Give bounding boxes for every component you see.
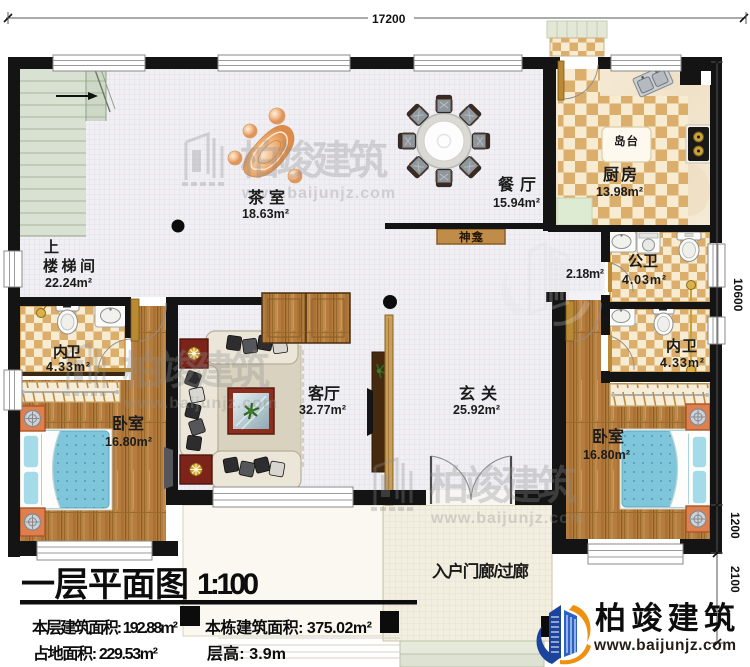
svg-text:入户门廊/过廊: 入户门廊/过廊 — [432, 561, 529, 581]
svg-text:卧室: 卧室 — [592, 427, 624, 446]
svg-text:公卫: 公卫 — [628, 253, 658, 270]
svg-text:一层平面图: 一层平面图 — [21, 566, 189, 604]
svg-text:1200: 1200 — [728, 512, 742, 539]
svg-text:25.92m²: 25.92m² — [453, 403, 500, 417]
svg-text:4.03m²: 4.03m² — [622, 273, 666, 287]
svg-text:楼梯间: 楼梯间 — [43, 257, 95, 275]
svg-text:岛台: 岛台 — [614, 134, 638, 148]
svg-text:卧室: 卧室 — [112, 414, 144, 433]
svg-text:内卫: 内卫 — [53, 343, 81, 361]
svg-text:16.80m²: 16.80m² — [583, 448, 630, 462]
svg-text:神龛: 神龛 — [459, 230, 484, 244]
svg-text:www.baijunjz.com: www.baijunjz.com — [241, 185, 396, 202]
svg-text:占地面积: 229.53m²: 占地面积: 229.53m² — [33, 644, 158, 663]
svg-text:2100: 2100 — [728, 566, 742, 593]
svg-text:17200: 17200 — [372, 12, 406, 26]
svg-text:4.33m²: 4.33m² — [660, 356, 704, 370]
svg-text:22.24m²: 22.24m² — [45, 276, 92, 290]
svg-text:上: 上 — [44, 239, 59, 256]
svg-text:客厅: 客厅 — [308, 384, 340, 403]
svg-text:10600: 10600 — [731, 278, 745, 312]
svg-text:内卫: 内卫 — [666, 337, 697, 355]
svg-text:本层建筑面积: 192.88m²: 本层建筑面积: 192.88m² — [32, 618, 178, 637]
svg-text:4.33m²: 4.33m² — [46, 360, 90, 374]
svg-text:www.baijunjz.com: www.baijunjz.com — [593, 637, 736, 654]
svg-text:18.63m²: 18.63m² — [242, 207, 289, 221]
svg-text:13.98m²: 13.98m² — [596, 185, 643, 199]
svg-text:本栋建筑面积: 375.02m²: 本栋建筑面积: 375.02m² — [205, 618, 372, 637]
svg-text:层高: 3.9m: 层高: 3.9m — [207, 644, 286, 663]
svg-text:2.18m²: 2.18m² — [566, 267, 604, 281]
svg-text:1:100: 1:100 — [197, 568, 259, 601]
svg-text:15.94m²: 15.94m² — [493, 196, 540, 210]
svg-text:16.80m²: 16.80m² — [105, 435, 152, 449]
svg-text:32.77m²: 32.77m² — [299, 403, 346, 417]
svg-text:柏竣建筑: 柏竣建筑 — [240, 139, 388, 183]
svg-text:厨房: 厨房 — [603, 165, 637, 184]
